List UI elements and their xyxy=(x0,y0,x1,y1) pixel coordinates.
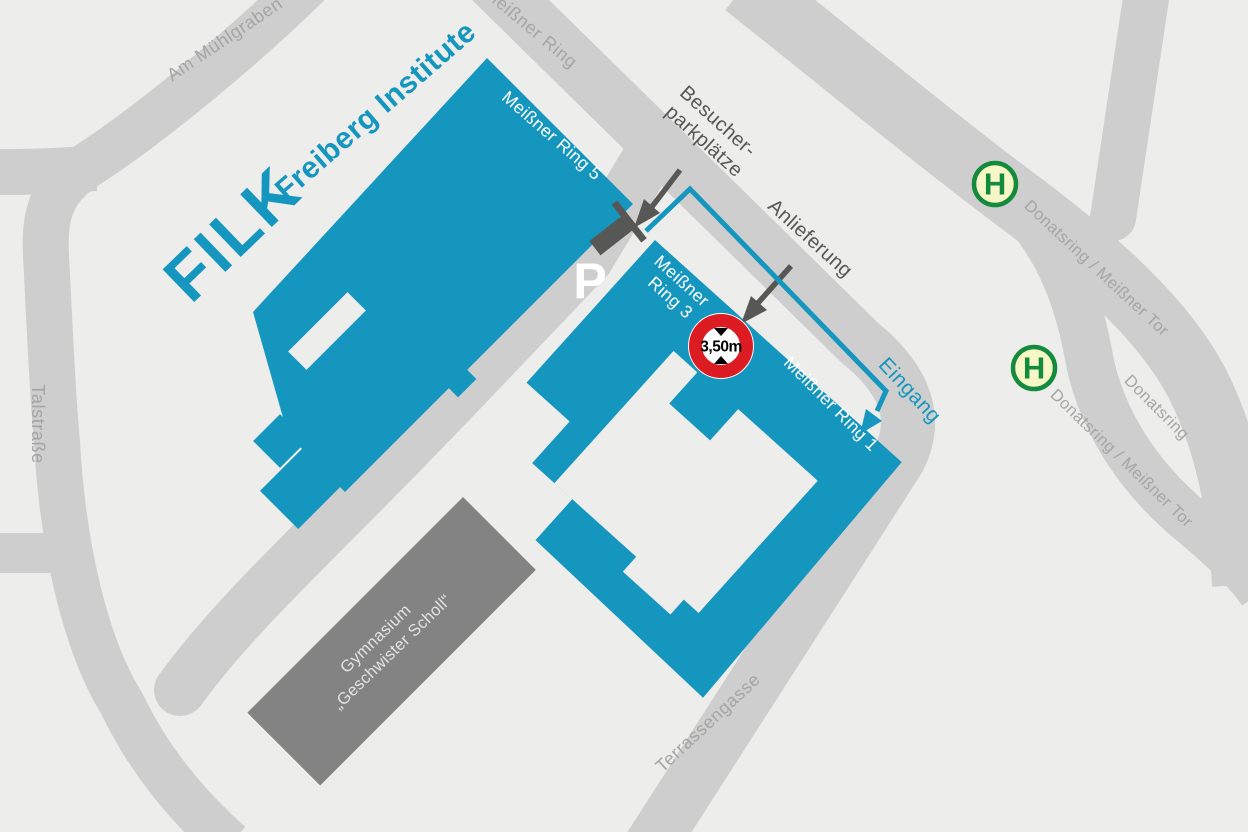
road-stub-left-top xyxy=(0,168,95,172)
bus-stop-upper: H xyxy=(974,163,1016,205)
bus-stop-lower: H xyxy=(1013,347,1055,389)
bus-stop-icon: H xyxy=(1023,351,1045,386)
height-limit-value: 3,50m xyxy=(700,339,741,356)
campus-map: Gymnasium „Geschwister Scholl“ Am Mühlgr… xyxy=(0,0,1248,832)
parking-symbol: P xyxy=(573,253,606,309)
bus-stop-icon: H xyxy=(984,167,1006,202)
height-limit-sign: 3,50m xyxy=(688,313,754,379)
street-label-talstrasse: Talstraße xyxy=(28,384,48,463)
